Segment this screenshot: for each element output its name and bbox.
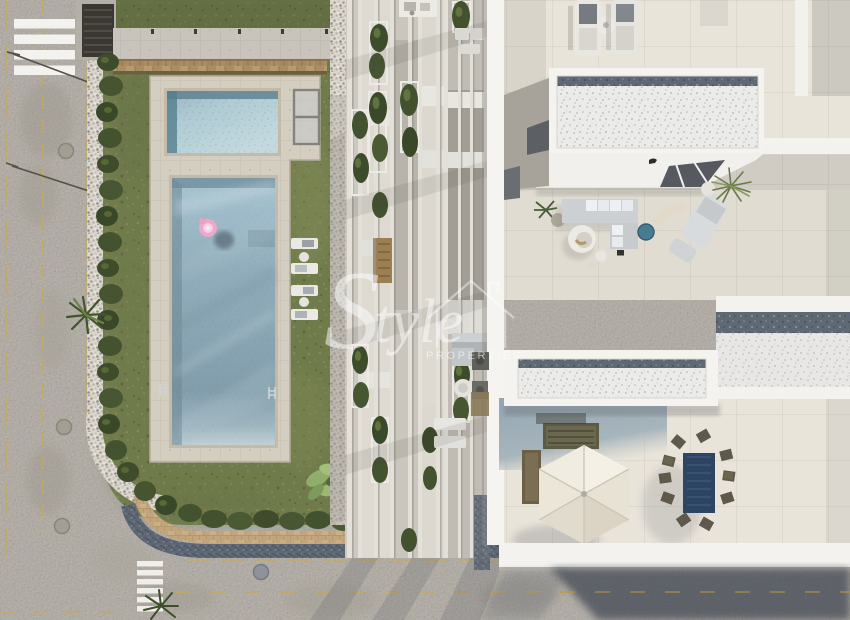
svg-text:S: S: [324, 249, 380, 373]
svg-text:PROPERTIES: PROPERTIES: [426, 350, 523, 362]
